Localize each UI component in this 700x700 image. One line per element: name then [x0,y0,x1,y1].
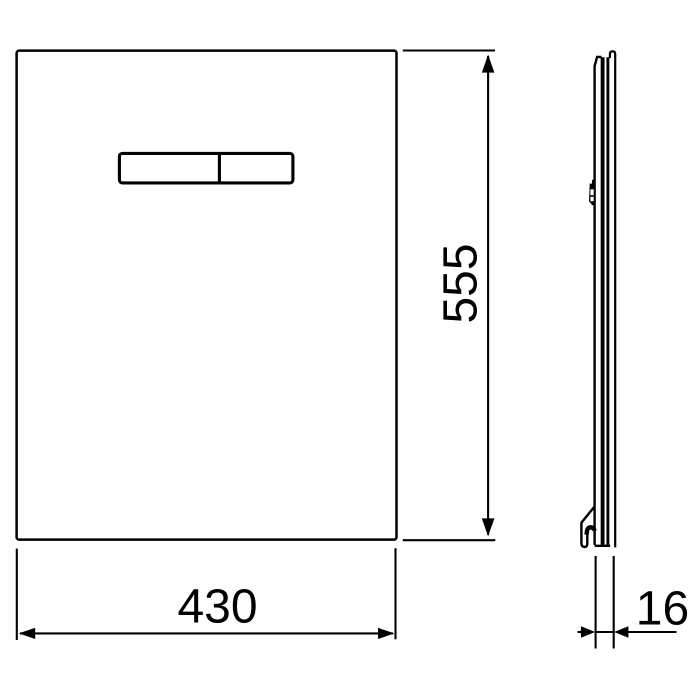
svg-text:430: 430 [177,581,257,634]
svg-text:555: 555 [435,243,488,323]
svg-text:16: 16 [636,583,689,636]
